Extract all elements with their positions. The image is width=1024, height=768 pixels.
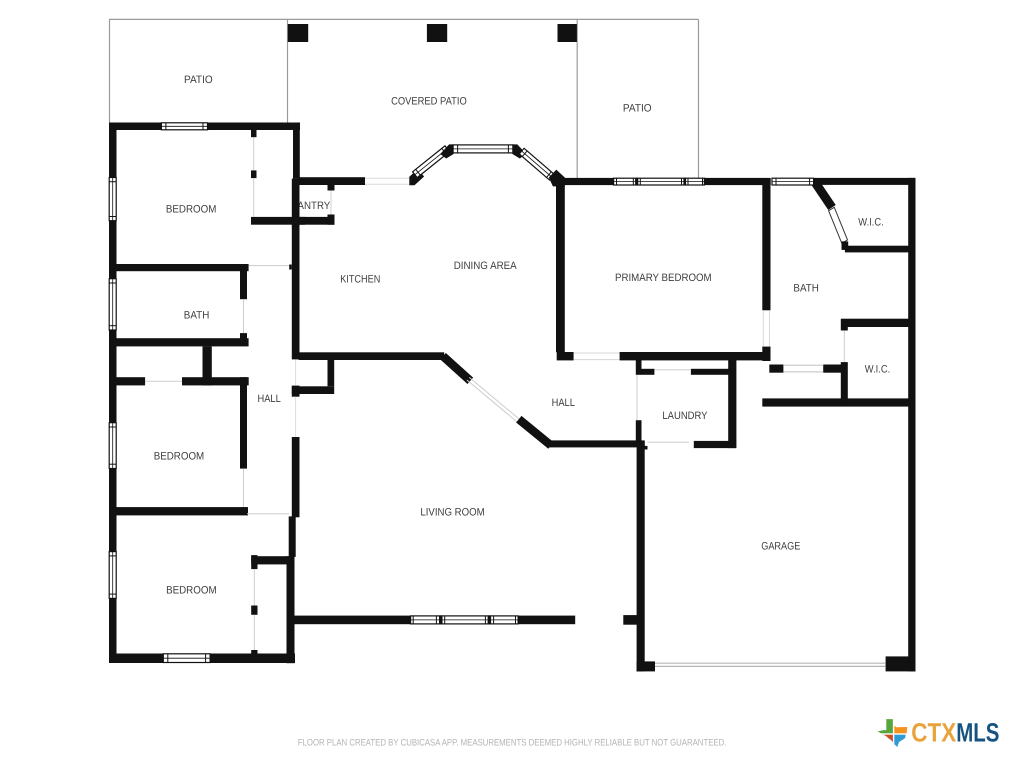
svg-text:HALL: HALL — [258, 393, 281, 405]
svg-text:BATH: BATH — [184, 310, 210, 322]
svg-text:COVERED PATIO: COVERED PATIO — [391, 96, 467, 108]
svg-text:KITCHEN: KITCHEN — [340, 273, 380, 285]
svg-text:GARAGE: GARAGE — [761, 540, 800, 552]
svg-text:DINING AREA: DINING AREA — [454, 260, 518, 272]
svg-text:PATIO: PATIO — [623, 103, 652, 115]
svg-text:PRIMARY BEDROOM: PRIMARY BEDROOM — [615, 272, 712, 284]
svg-text:MLS: MLS — [956, 718, 999, 748]
svg-text:W.I.C.: W.I.C. — [858, 216, 883, 228]
svg-text:PATIO: PATIO — [184, 74, 213, 86]
svg-text:BEDROOM: BEDROOM — [166, 585, 217, 597]
svg-text:BEDROOM: BEDROOM — [166, 204, 217, 216]
svg-text:W.I.C.: W.I.C. — [865, 363, 890, 375]
svg-text:LIVING ROOM: LIVING ROOM — [420, 507, 484, 519]
svg-text:HALL: HALL — [552, 397, 575, 409]
svg-text:CTX: CTX — [911, 718, 956, 748]
svg-text:BATH: BATH — [793, 282, 819, 294]
svg-text:LAUNDRY: LAUNDRY — [662, 410, 707, 422]
svg-text:FLOOR PLAN CREATED BY CUBICASA: FLOOR PLAN CREATED BY CUBICASA APP. MEAS… — [298, 738, 727, 749]
svg-text:BEDROOM: BEDROOM — [154, 450, 205, 462]
